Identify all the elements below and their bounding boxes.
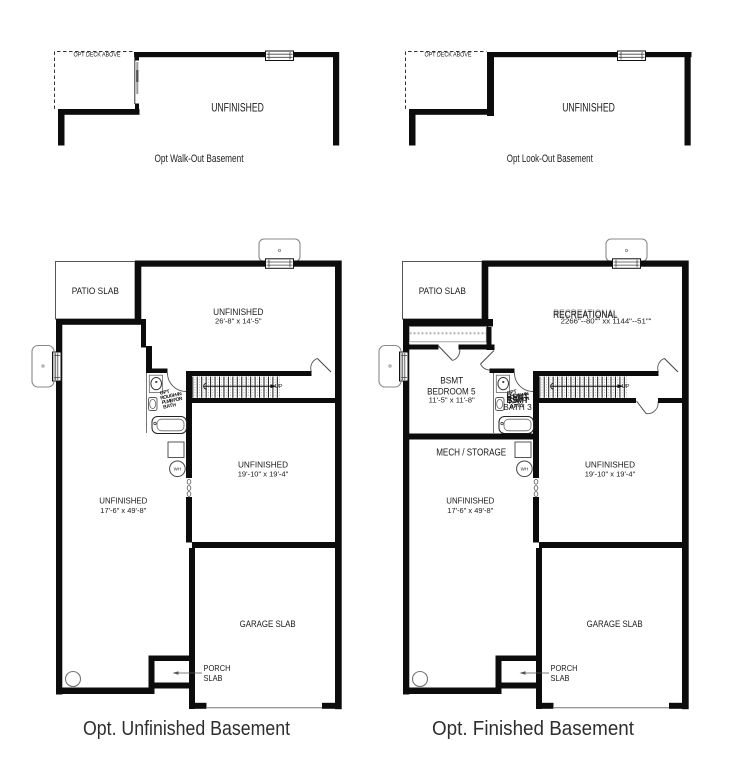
svg-text:19'-10" x 19'-4": 19'-10" x 19'-4": [238, 472, 289, 479]
svg-text:UNFINISHED: UNFINISHED: [99, 496, 147, 506]
svg-text:UP: UP: [622, 384, 630, 390]
svg-text:BATH 3: BATH 3: [503, 402, 532, 412]
svg-text:17'-6" x 49'-8": 17'-6" x 49'-8": [447, 508, 494, 515]
svg-text:UP: UP: [275, 384, 283, 390]
svg-text:PORCH: PORCH: [551, 663, 578, 673]
svg-text:Opt. Finished Basement: Opt. Finished Basement: [432, 718, 634, 740]
svg-text:UNFINISHED: UNFINISHED: [211, 100, 264, 114]
svg-text:Opt Look-Out Basement: Opt Look-Out Basement: [507, 153, 593, 165]
svg-text:Opt Walk-Out Basement: Opt Walk-Out Basement: [155, 153, 244, 165]
svg-text:MECH / STORAGE: MECH / STORAGE: [436, 447, 506, 458]
svg-text:26'-8" x 14'-5": 26'-8" x 14'-5": [215, 319, 262, 326]
svg-text:SLAB: SLAB: [204, 673, 223, 683]
svg-text:GARAGE SLAB: GARAGE SLAB: [587, 619, 643, 629]
svg-text:11'-5" x 11'-8": 11'-5" x 11'-8": [429, 398, 476, 405]
svg-text:OPT DECK ABOVE: OPT DECK ABOVE: [74, 53, 121, 59]
svg-text:2266"--80"" xx 1144"--51"": 2266"--80"" xx 1144"--51"": [561, 318, 652, 325]
svg-text:Opt. Unfinished Basement: Opt. Unfinished Basement: [83, 718, 290, 740]
svg-text:GARAGE SLAB: GARAGE SLAB: [240, 619, 296, 629]
svg-text:OPT DECK ABOVE: OPT DECK ABOVE: [425, 53, 472, 59]
svg-text:UNFINISHED: UNFINISHED: [562, 100, 615, 114]
svg-text:PATIO SLAB: PATIO SLAB: [419, 286, 466, 296]
svg-text:WH: WH: [521, 467, 529, 472]
svg-text:UNFINISHED: UNFINISHED: [238, 460, 288, 469]
svg-text:UNFINISHED: UNFINISHED: [446, 496, 494, 506]
svg-text:UNFINISHED: UNFINISHED: [585, 460, 635, 469]
svg-text:17'-6" x 49'-8": 17'-6" x 49'-8": [100, 508, 147, 515]
svg-text:PORCH: PORCH: [204, 663, 231, 673]
svg-text:BSMT: BSMT: [440, 376, 463, 387]
svg-text:SLAB: SLAB: [551, 673, 570, 683]
svg-text:WH: WH: [174, 467, 182, 472]
svg-text:BEDROOM 5: BEDROOM 5: [427, 386, 475, 397]
svg-text:PATIO SLAB: PATIO SLAB: [72, 286, 119, 296]
svg-text:UNFINISHED: UNFINISHED: [213, 307, 264, 317]
svg-text:19'-10" x 19'-4": 19'-10" x 19'-4": [585, 472, 636, 479]
